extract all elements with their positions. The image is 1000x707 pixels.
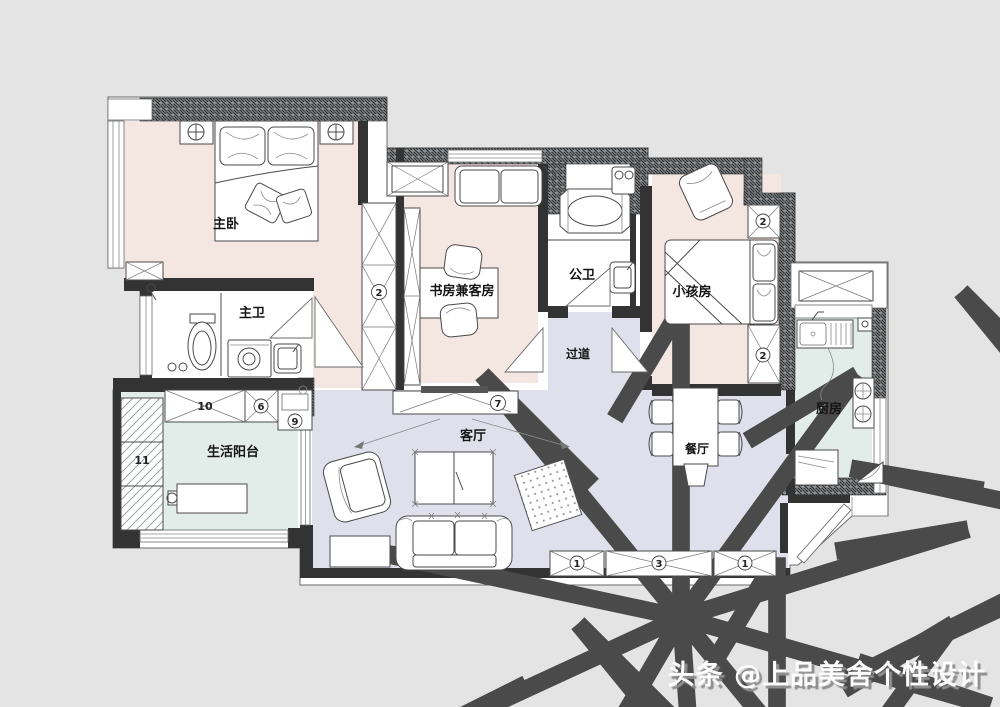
balcony-sink-cabinet: 9 bbox=[278, 386, 312, 430]
dining-chair-icon bbox=[718, 432, 742, 456]
dining-chair-icon bbox=[649, 400, 673, 424]
room-label-dining: 餐厅 bbox=[685, 441, 709, 456]
study-wardrobe bbox=[404, 208, 420, 385]
room-label-master-bedroom: 主卧 bbox=[213, 216, 239, 232]
window-masterbath-left bbox=[140, 296, 152, 375]
room-label-living: 客厅 bbox=[460, 428, 486, 444]
marker-tv-cabinet: 7 bbox=[495, 399, 502, 410]
watermark: 头条 @上品美舍个性设计 bbox=[668, 653, 986, 692]
sink-icon bbox=[274, 344, 301, 373]
room-label-hallway: 过道 bbox=[566, 346, 590, 361]
marker-bottom-cabinet-right: 1 bbox=[742, 559, 749, 570]
side-table-icon bbox=[330, 536, 390, 567]
bathtub-icon bbox=[560, 189, 630, 233]
stool-icon bbox=[684, 464, 708, 486]
sink-icon bbox=[610, 261, 635, 293]
bed-icon bbox=[665, 240, 778, 324]
window-seat-cabinet: 1 bbox=[714, 551, 776, 576]
room-label-master-bath: 主卫 bbox=[239, 305, 265, 321]
switch-box bbox=[858, 318, 872, 331]
window-balcony-bottom bbox=[140, 530, 288, 542]
nightstand-icon bbox=[180, 121, 213, 144]
tv-icon bbox=[421, 386, 488, 393]
window-bench-icon bbox=[126, 262, 163, 280]
room-label-public-bath: 公卫 bbox=[569, 268, 595, 283]
kids-wardrobe: 2 bbox=[748, 325, 780, 383]
window-seat-cabinet: 3 bbox=[606, 551, 712, 576]
chair-icon bbox=[439, 302, 478, 338]
marker-kids-wardrobe-bottom: 2 bbox=[760, 351, 767, 362]
washing-machine-icon bbox=[228, 340, 271, 377]
balcony-cabinet: 10 bbox=[165, 390, 245, 422]
toilet-icon bbox=[612, 167, 635, 194]
marker-bottom-cabinet-left: 1 bbox=[574, 559, 581, 570]
bottom-cabinets: 1 3 1 bbox=[550, 551, 776, 576]
marker-bottom-cabinet-middle: 3 bbox=[656, 559, 663, 570]
marker-balcony-cabinet-6: 6 bbox=[258, 402, 265, 413]
window-seat-cabinet: 1 bbox=[550, 551, 604, 576]
kitchen-recess-cabinet bbox=[791, 263, 887, 308]
marker-balcony-cabinet-10: 10 bbox=[197, 400, 213, 413]
dining-chair-icon bbox=[718, 400, 742, 424]
marker-balcony-cabinet-11: 11 bbox=[134, 454, 149, 467]
coffee-table-icon bbox=[412, 449, 496, 507]
kids-wardrobe: 2 bbox=[748, 205, 780, 238]
balcony-tall-cabinet: 11 bbox=[121, 398, 163, 530]
toilet-icon bbox=[188, 314, 216, 370]
marker-master-wardrobe: 2 bbox=[376, 288, 383, 299]
room-label-study: 书房兼客房 bbox=[429, 283, 494, 299]
cabinet-icon bbox=[387, 162, 448, 196]
table-icon bbox=[167, 484, 247, 513]
chair-icon bbox=[443, 244, 483, 281]
dining-chair-icon bbox=[649, 432, 673, 456]
sofa-icon bbox=[396, 512, 512, 570]
marker-balcony-cabinet-9: 9 bbox=[292, 417, 299, 428]
fridge-icon bbox=[795, 450, 838, 485]
stove-icon bbox=[853, 378, 874, 428]
room-label-kitchen: 厨房 bbox=[816, 401, 842, 417]
loveseat-icon bbox=[455, 166, 542, 206]
window-study-top bbox=[448, 150, 542, 162]
balcony-cabinet: 6 bbox=[245, 390, 278, 422]
room-label-balcony: 生活阳台 bbox=[207, 444, 259, 460]
nightstand-icon bbox=[320, 121, 353, 144]
marker-kids-wardrobe-top: 2 bbox=[760, 217, 767, 228]
room-label-kids: 小孩房 bbox=[672, 284, 711, 300]
master-wardrobe: 2 bbox=[362, 203, 396, 390]
floor-plan: 主卧 2 书房兼客房 bbox=[0, 0, 1000, 707]
